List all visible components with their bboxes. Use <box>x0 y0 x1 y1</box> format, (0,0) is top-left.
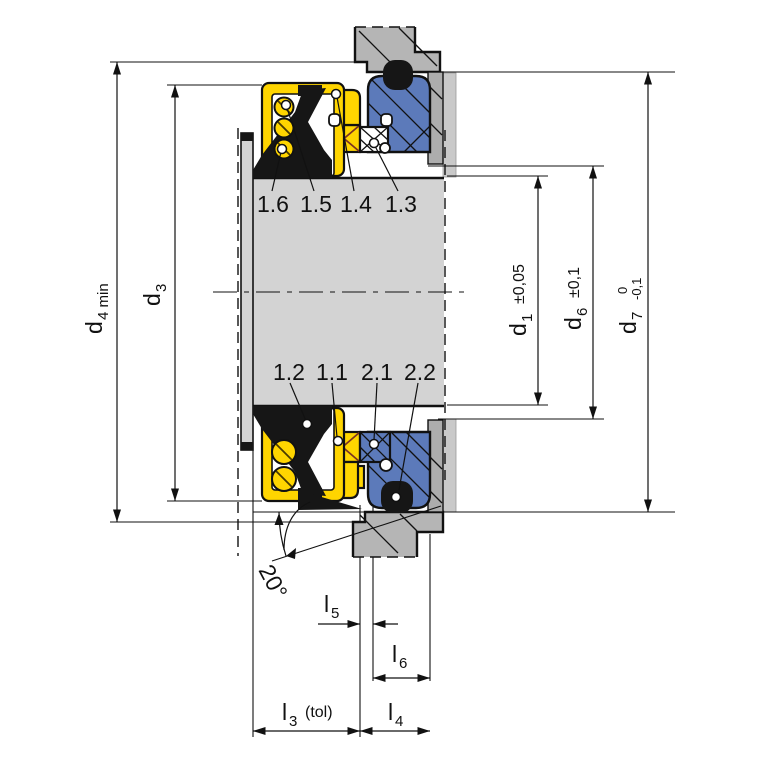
svg-text:6: 6 <box>574 308 591 316</box>
part-label-1-5: 1.5 <box>300 191 332 217</box>
svg-text:d: d <box>505 323 531 336</box>
svg-text:4 min: 4 min <box>95 283 112 320</box>
o-ring-upper <box>383 60 413 90</box>
svg-text:-0,1: -0,1 <box>629 278 644 300</box>
svg-text:6: 6 <box>399 655 407 672</box>
svg-text:3: 3 <box>153 284 170 292</box>
dim-label-d1: d 1 ±0,05 <box>505 264 536 336</box>
svg-text:0: 0 <box>615 287 630 294</box>
part-label-1-2: 1.2 <box>273 359 305 385</box>
dim-label-d6: d 6 ±0,1 <box>560 267 591 330</box>
seat-notch-lower <box>380 459 392 471</box>
gasket-nub-left <box>329 114 340 126</box>
seat-notch-upper <box>380 143 390 153</box>
dim-label-d7: d 7 0 -0,1 <box>615 278 646 334</box>
svg-text:5: 5 <box>331 605 339 622</box>
svg-text:l: l <box>388 699 393 725</box>
part-label-1-1: 1.1 <box>316 359 348 385</box>
dim-label-l6: l 6 <box>392 641 407 672</box>
svg-text:d: d <box>139 293 165 306</box>
gasket-nub-right <box>381 114 392 126</box>
housing-break-strip-upper <box>443 73 456 177</box>
part-label-1-3: 1.3 <box>385 191 417 217</box>
svg-text:3: 3 <box>289 713 297 730</box>
svg-text:d: d <box>560 317 586 330</box>
dim-label-d4min: d 4 min <box>81 283 112 334</box>
svg-text:20°: 20° <box>254 560 293 603</box>
svg-text:±0,05: ±0,05 <box>511 264 528 304</box>
part-label-2-1: 2.1 <box>361 359 393 385</box>
dim-label-l4: l 4 <box>388 699 403 730</box>
technical-drawing-page: 1.6 1.5 1.4 1.3 1.2 1.1 2.1 2.2 d 4 min … <box>0 0 768 768</box>
dim-label-l3: l 3 (tol) <box>282 699 333 730</box>
dim-label-angle-20: 20° <box>254 560 293 603</box>
svg-text:d: d <box>615 321 641 334</box>
svg-text:4: 4 <box>395 713 403 730</box>
svg-text:±0,1: ±0,1 <box>566 267 583 298</box>
svg-text:l: l <box>282 699 287 725</box>
svg-text:7: 7 <box>629 312 646 320</box>
part-label-2-2: 2.2 <box>404 359 436 385</box>
mechanical-seal-cross-section-diagram: 1.6 1.5 1.4 1.3 1.2 1.1 2.1 2.2 d 4 min … <box>0 0 768 768</box>
svg-text:l: l <box>324 591 329 617</box>
svg-text:d: d <box>81 321 107 334</box>
housing-break-strip-lower <box>443 419 456 512</box>
dim-label-l5: l 5 <box>324 591 339 622</box>
part-label-1-4: 1.4 <box>340 191 372 217</box>
svg-text:l: l <box>392 641 397 667</box>
svg-text:(tol): (tol) <box>305 704 333 721</box>
svg-text:1: 1 <box>519 314 536 322</box>
dim-label-d3: d 3 <box>139 284 170 306</box>
part-label-1-6: 1.6 <box>257 191 289 217</box>
